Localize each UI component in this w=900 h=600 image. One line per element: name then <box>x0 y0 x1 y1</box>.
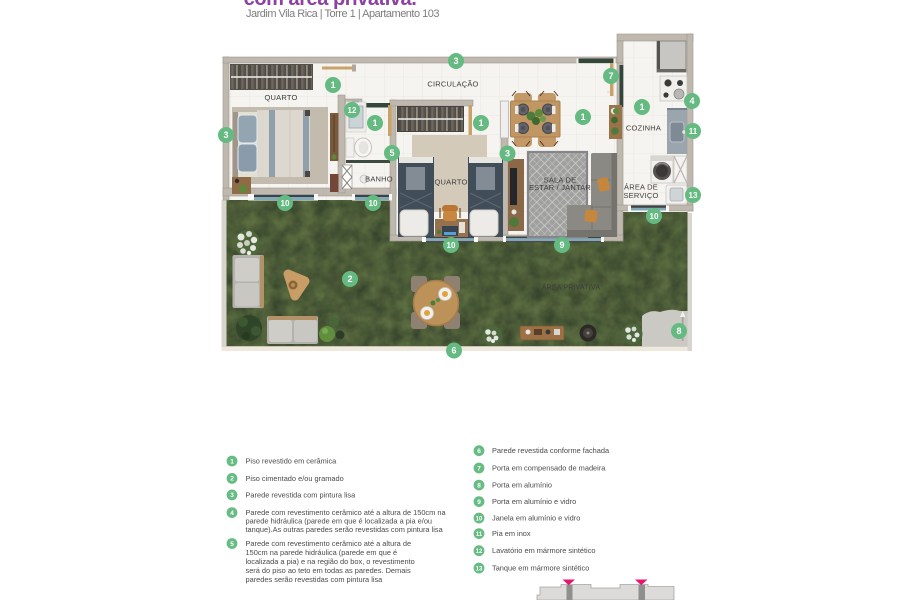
svg-text:Jardim Vila Rica | Torre 1 | A: Jardim Vila Rica | Torre 1 | Apartamento… <box>246 8 439 20</box>
svg-text:2: 2 <box>230 476 234 483</box>
svg-text:Porta em compensado de madeira: Porta em compensado de madeira <box>492 464 606 473</box>
svg-text:5: 5 <box>230 541 234 548</box>
svg-text:Pia em inox: Pia em inox <box>492 529 531 538</box>
svg-text:Parede revestida com pintura l: Parede revestida com pintura lisa <box>246 490 357 499</box>
svg-text:será do piso ao teto em todas: será do piso ao teto em todas as paredes… <box>246 566 411 575</box>
svg-text:6: 6 <box>477 448 481 455</box>
svg-text:2: 2 <box>347 274 352 284</box>
svg-text:10: 10 <box>476 516 483 522</box>
svg-text:Parede com revestimento cerâmi: Parede com revestimento cerâmico até a a… <box>246 539 412 548</box>
svg-text:4: 4 <box>689 96 694 106</box>
svg-text:Parede revestida conforme fach: Parede revestida conforme fachada <box>492 446 610 455</box>
svg-text:7: 7 <box>477 465 481 472</box>
svg-text:Piso cimentado e/ou gramado: Piso cimentado e/ou gramado <box>246 474 344 483</box>
svg-text:QUARTO: QUARTO <box>434 177 467 186</box>
svg-text:13: 13 <box>689 191 698 200</box>
svg-text:localizada a pia) e na região: localizada a pia) e na região do box, o … <box>246 557 415 566</box>
svg-text:ÁREA PRIVATIVA: ÁREA PRIVATIVA <box>542 282 601 291</box>
svg-text:Porta em alumínio e vidro: Porta em alumínio e vidro <box>492 497 576 506</box>
svg-text:3: 3 <box>223 130 228 140</box>
svg-text:1: 1 <box>330 80 335 90</box>
svg-text:tanque).As outras paredes serã: tanque).As outras paredes serão revestid… <box>246 525 444 534</box>
svg-text:10: 10 <box>650 212 659 221</box>
svg-text:3: 3 <box>453 56 458 66</box>
svg-text:Lavatório em mármore sintético: Lavatório em mármore sintético <box>492 546 596 555</box>
svg-text:1: 1 <box>580 112 585 122</box>
svg-text:SERVIÇO: SERVIÇO <box>623 191 658 200</box>
svg-text:10: 10 <box>369 199 378 208</box>
svg-text:QUARTO: QUARTO <box>264 93 297 102</box>
svg-text:BANHO: BANHO <box>365 174 393 183</box>
svg-text:1: 1 <box>230 458 234 465</box>
svg-text:8: 8 <box>477 482 481 489</box>
svg-text:9: 9 <box>559 240 564 250</box>
svg-text:1: 1 <box>478 118 483 128</box>
svg-text:7: 7 <box>608 71 613 81</box>
svg-text:Tanque em mármore sintético: Tanque em mármore sintético <box>492 564 589 573</box>
svg-text:8: 8 <box>676 326 681 336</box>
svg-text:150cm na parede hidráulica (pa: 150cm na parede hidráulica (parede em qu… <box>246 548 398 557</box>
svg-text:10: 10 <box>281 199 290 208</box>
svg-text:3: 3 <box>230 492 234 499</box>
svg-text:11: 11 <box>689 127 698 136</box>
svg-text:paredes serão revestidas com p: paredes serão revestidas com pintura lis… <box>246 575 384 584</box>
svg-text:5: 5 <box>389 148 394 158</box>
svg-text:12: 12 <box>348 106 357 115</box>
svg-text:Janela em alumínio e vidro: Janela em alumínio e vidro <box>492 514 580 523</box>
svg-text:13: 13 <box>476 566 483 572</box>
svg-text:12: 12 <box>476 549 483 555</box>
svg-text:11: 11 <box>476 532 483 538</box>
svg-text:9: 9 <box>477 499 481 506</box>
svg-text:Piso revestido em cerâmica: Piso revestido em cerâmica <box>246 457 338 466</box>
svg-text:Porta em alumínio: Porta em alumínio <box>492 481 552 490</box>
svg-text:1: 1 <box>372 118 377 128</box>
svg-text:6: 6 <box>451 346 456 356</box>
svg-text:3: 3 <box>505 149 510 159</box>
svg-text:CIRCULAÇÃO: CIRCULAÇÃO <box>427 80 478 89</box>
svg-text:1: 1 <box>639 102 644 112</box>
svg-text:ESTAR / JANTAR: ESTAR / JANTAR <box>529 183 591 192</box>
svg-text:10: 10 <box>447 241 456 250</box>
svg-text:COZINHA: COZINHA <box>626 123 661 132</box>
svg-text:4: 4 <box>230 510 234 517</box>
